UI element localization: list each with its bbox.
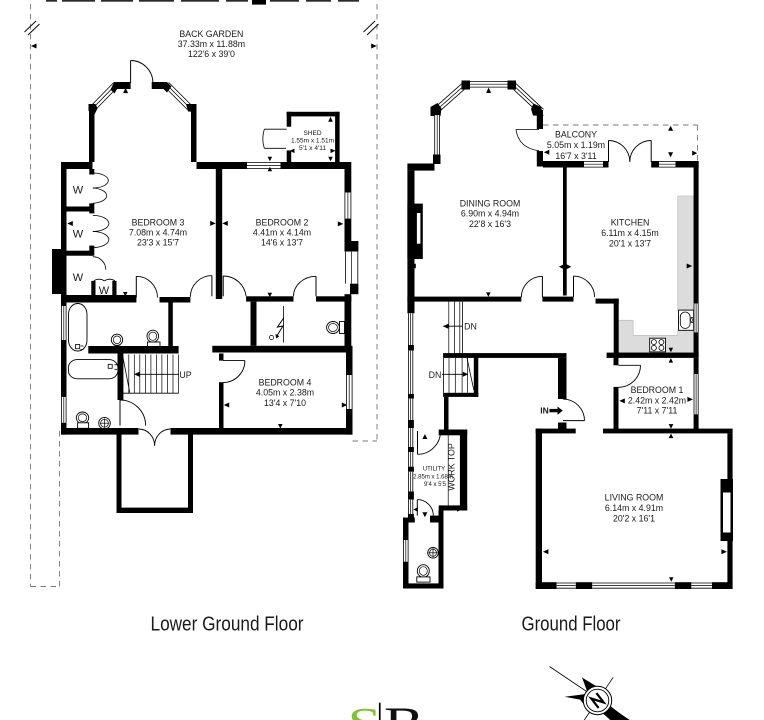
svg-text:KITCHEN: KITCHEN (611, 218, 650, 228)
svg-text:2.85m x 1.68m: 2.85m x 1.68m (413, 475, 453, 481)
svg-text:LIVING ROOM: LIVING ROOM (605, 493, 664, 503)
svg-text:14'6 x 13'7: 14'6 x 13'7 (261, 238, 303, 248)
svg-text:BACK GARDEN: BACK GARDEN (179, 29, 243, 39)
svg-text:DN: DN (464, 322, 477, 332)
svg-text:Lower Ground Floor: Lower Ground Floor (151, 613, 304, 636)
svg-text:W: W (73, 272, 84, 284)
svg-text:6.90m x 4.94m: 6.90m x 4.94m (461, 209, 519, 219)
svg-text:7'11 x 7'11: 7'11 x 7'11 (637, 406, 678, 416)
svg-text:W: W (99, 285, 110, 297)
svg-text:20'2 x 16'1: 20'2 x 16'1 (613, 514, 655, 524)
svg-text:9'4 x 5'5: 9'4 x 5'5 (424, 482, 447, 488)
svg-text:20'1 x 13'7: 20'1 x 13'7 (609, 239, 651, 249)
svg-text:5.05m x 1.19m: 5.05m x 1.19m (547, 140, 605, 150)
svg-text:6.11m x 4.15m: 6.11m x 4.15m (601, 228, 659, 238)
svg-text:5'1 x 4'11: 5'1 x 4'11 (299, 145, 326, 152)
svg-text:WORK TOP: WORK TOP (447, 443, 457, 491)
svg-text:23'3 x 15'7: 23'3 x 15'7 (137, 238, 179, 248)
svg-text:UTILITY: UTILITY (423, 467, 445, 473)
svg-text:37.33m x 11.88m: 37.33m x 11.88m (178, 39, 245, 49)
svg-text:4.41m x 4.14m: 4.41m x 4.14m (253, 228, 311, 238)
svg-text:DN: DN (429, 370, 442, 380)
svg-text:16'7 x 3'11: 16'7 x 3'11 (555, 151, 596, 161)
svg-text:6.14m x 4.91m: 6.14m x 4.91m (605, 503, 663, 513)
svg-text:2.42m x 2.42m: 2.42m x 2.42m (628, 396, 686, 406)
svg-text:IN: IN (540, 406, 549, 416)
svg-text:BEDROOM 2: BEDROOM 2 (256, 218, 309, 228)
svg-text:UP: UP (179, 370, 191, 380)
svg-text:S: S (348, 700, 382, 720)
svg-text:BALCONY: BALCONY (555, 130, 597, 140)
svg-text:W: W (73, 229, 84, 241)
svg-text:4.05m x 2.38m: 4.05m x 2.38m (256, 388, 314, 398)
svg-text:122'6 x 39'0: 122'6 x 39'0 (188, 49, 235, 59)
svg-text:BEDROOM 3: BEDROOM 3 (132, 218, 185, 228)
svg-text:BEDROOM 4: BEDROOM 4 (259, 378, 312, 388)
svg-text:DINING ROOM: DINING ROOM (460, 199, 521, 209)
svg-text:SHED: SHED (303, 130, 321, 137)
svg-text:W: W (73, 185, 84, 197)
svg-text:BEDROOM 1: BEDROOM 1 (631, 385, 684, 395)
svg-text:22'8 x 16'3: 22'8 x 16'3 (469, 219, 511, 229)
svg-text:7.08m x 4.74m: 7.08m x 4.74m (129, 228, 187, 238)
svg-text:Ground Floor: Ground Floor (522, 613, 621, 636)
svg-text:1.55m x 1.51m: 1.55m x 1.51m (291, 137, 334, 144)
svg-text:B: B (384, 698, 424, 720)
svg-text:13'4 x 7'10: 13'4 x 7'10 (264, 398, 306, 408)
